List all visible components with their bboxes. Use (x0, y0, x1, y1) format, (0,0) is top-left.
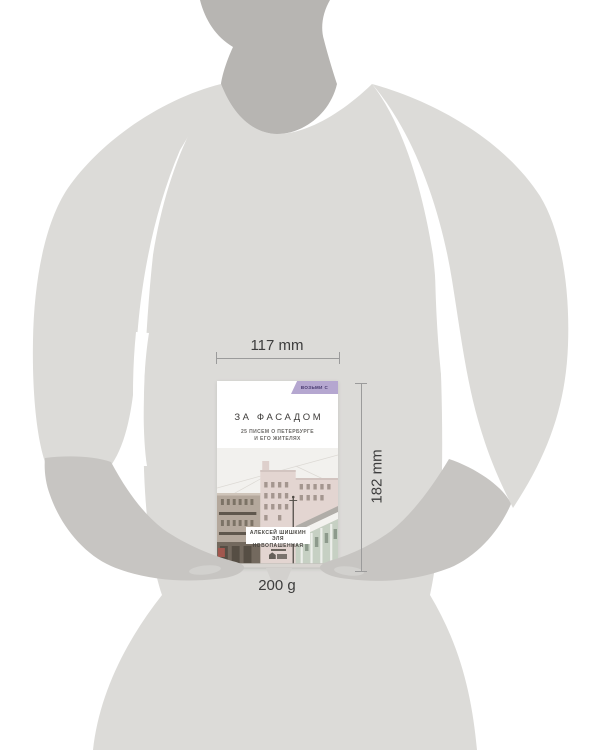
hands-overlay (0, 0, 600, 750)
left-forearm-hand (45, 456, 245, 580)
right-forearm-hand (320, 459, 511, 581)
weight-label: 200 g (227, 577, 327, 594)
width-dimension-line (216, 352, 340, 364)
height-dimension-line (355, 383, 367, 572)
height-dimension-label: 182 mm (369, 448, 386, 506)
product-dimension-illustration: ВОЗЬМИ С СОБОЙ ЗА ФАСАДОМ 25 ПИСЕМ О ПЕТ… (0, 0, 600, 750)
